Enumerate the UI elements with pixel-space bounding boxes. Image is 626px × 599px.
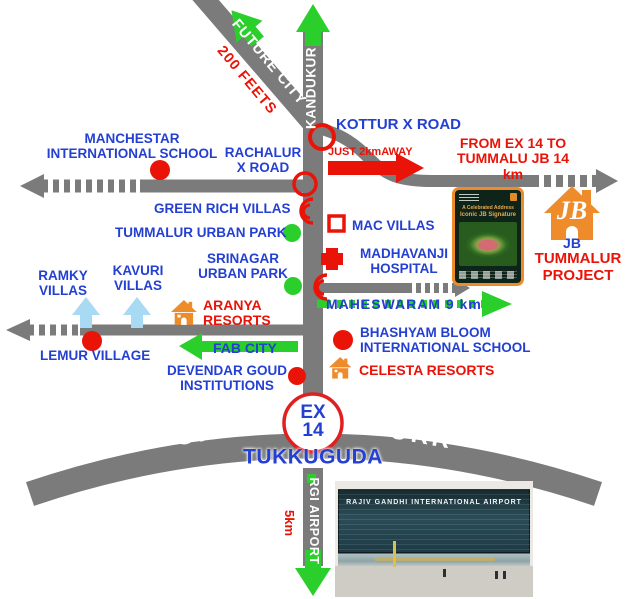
airport-sign: RAJIV GANDHI INTERNATIONAL AIRPORT [338, 499, 530, 506]
label-kottur-x-road: KOTTUR X ROAD [336, 117, 461, 134]
just-2km-red-arrow-icon [328, 161, 396, 175]
label-ramky-villas: RAMKY VILLAS [38, 269, 88, 299]
label-lemur-village: LEMUR VILLAGE [40, 349, 150, 364]
airport-photo: RAJIV GANDHI INTERNATIONAL AIRPORT [335, 481, 533, 597]
jb-monogram: JB [556, 196, 587, 225]
west-arrowhead-icon [20, 174, 44, 198]
bhashyam-dot-icon [333, 330, 353, 350]
ramky-villas-arrow-icon [72, 297, 100, 315]
person-figure [495, 571, 498, 579]
devendar-dot-icon [288, 367, 306, 385]
jb-project-poster: A Celebrated Address Iconic JB Signature [452, 187, 524, 286]
label-kavuri-villas: KAVURI VILLAS [113, 264, 164, 294]
label-tukkuguda: TUKKUGUDA [243, 445, 383, 468]
location-map: JB FUTURE CITY 200 FEETS KANDUKUR ORR OR… [0, 0, 626, 599]
south-green-arrow-icon [295, 568, 331, 596]
maheswaram-green-square-icon [317, 300, 325, 308]
hospital-cross-icon [321, 253, 343, 265]
label-devendar-goud: DEVENDAR GOUD INSTITUTIONS [167, 364, 287, 394]
poster-emblem-icon [510, 193, 517, 201]
label-from-ex14: FROM EX 14 TO TUMMALU JB 14 km [457, 136, 570, 182]
label-celesta-resorts: CELESTA RESORTS [359, 363, 494, 378]
label-ex14: EX 14 [300, 404, 325, 440]
manchestar-dot-icon [150, 160, 170, 180]
road-label-5km: 5km [282, 510, 296, 536]
north-green-arrow-icon [296, 4, 330, 32]
label-green-rich-villas: GREEN RICH VILLAS [154, 202, 291, 217]
airport-pole [393, 541, 396, 567]
east-arrowhead-icon [596, 169, 618, 193]
label-tummalur-project: TUMMALUR PROJECT [535, 251, 622, 284]
ramky-villas-arrow-icon [80, 313, 92, 328]
label-fab-city: FAB CITY [213, 341, 277, 356]
label-madhavanji-hospital: MADHAVANJI HOSPITAL [360, 247, 448, 277]
celesta-house-icon [329, 357, 351, 379]
poster-logo [459, 194, 479, 201]
jb-project-house-icon: JB [544, 186, 600, 240]
maheswaram-green-arrow-icon [482, 291, 512, 317]
label-manchestar-school: MANCHESTAR INTERNATIONAL SCHOOL [47, 132, 218, 162]
label-maheswaram: MAHESWARAM 9 km [326, 297, 482, 312]
label-tummalur-urban-park: TUMMALUR URBAN PARK [115, 226, 286, 241]
label-mac-villas: MAC VILLAS [352, 219, 435, 234]
kavuri-villas-arrow-icon [123, 297, 151, 315]
west-arrowhead-icon [6, 319, 30, 341]
label-srinagar-urban-park: SRINAGAR URBAN PARK [198, 252, 288, 282]
aranya-house-icon [171, 300, 197, 325]
person-figure [443, 569, 446, 577]
road-label-rgi-airport: RGI AIRPORT [306, 478, 320, 565]
label-just-2km: JUST 2kmAWAY [328, 146, 413, 158]
north-green-arrow-icon [305, 30, 321, 46]
poster-headline: A Celebrated Address [455, 205, 521, 211]
mac-villas-square-icon [329, 216, 344, 231]
label-bhashyam-bloom: BHASHYAM BLOOM INTERNATIONAL SCHOOL [360, 326, 531, 356]
road-label-kandukur: KANDUKUR [305, 47, 320, 129]
label-rachalur-x-road: RACHALUR X ROAD [225, 146, 302, 176]
label-aranya-resorts: ARANYA RESORTS [203, 298, 271, 329]
poster-footer-text [459, 271, 517, 279]
kavuri-villas-arrow-icon [131, 313, 143, 328]
person-figure [503, 571, 506, 579]
airport-terminal-building: RAJIV GANDHI INTERNATIONAL AIRPORT [338, 489, 530, 553]
poster-subheadline: Iconic JB Signature [455, 212, 521, 218]
fab-city-green-arrow-icon [179, 333, 202, 360]
poster-aerial-render [459, 222, 517, 266]
